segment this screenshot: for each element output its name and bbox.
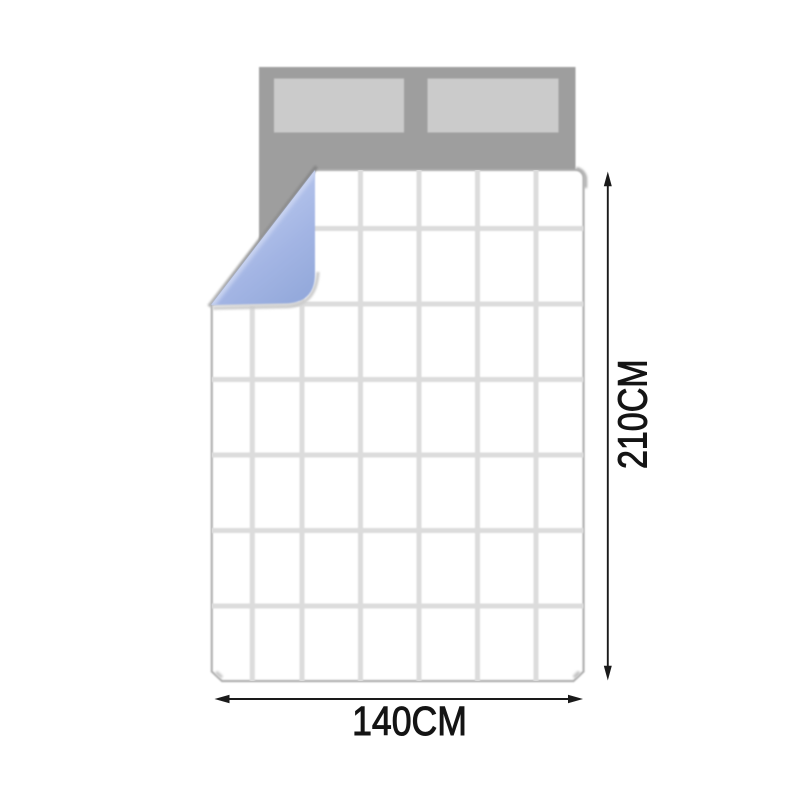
svg-text:140CM: 140CM [352, 699, 467, 745]
svg-text:210CM: 210CM [610, 359, 655, 469]
